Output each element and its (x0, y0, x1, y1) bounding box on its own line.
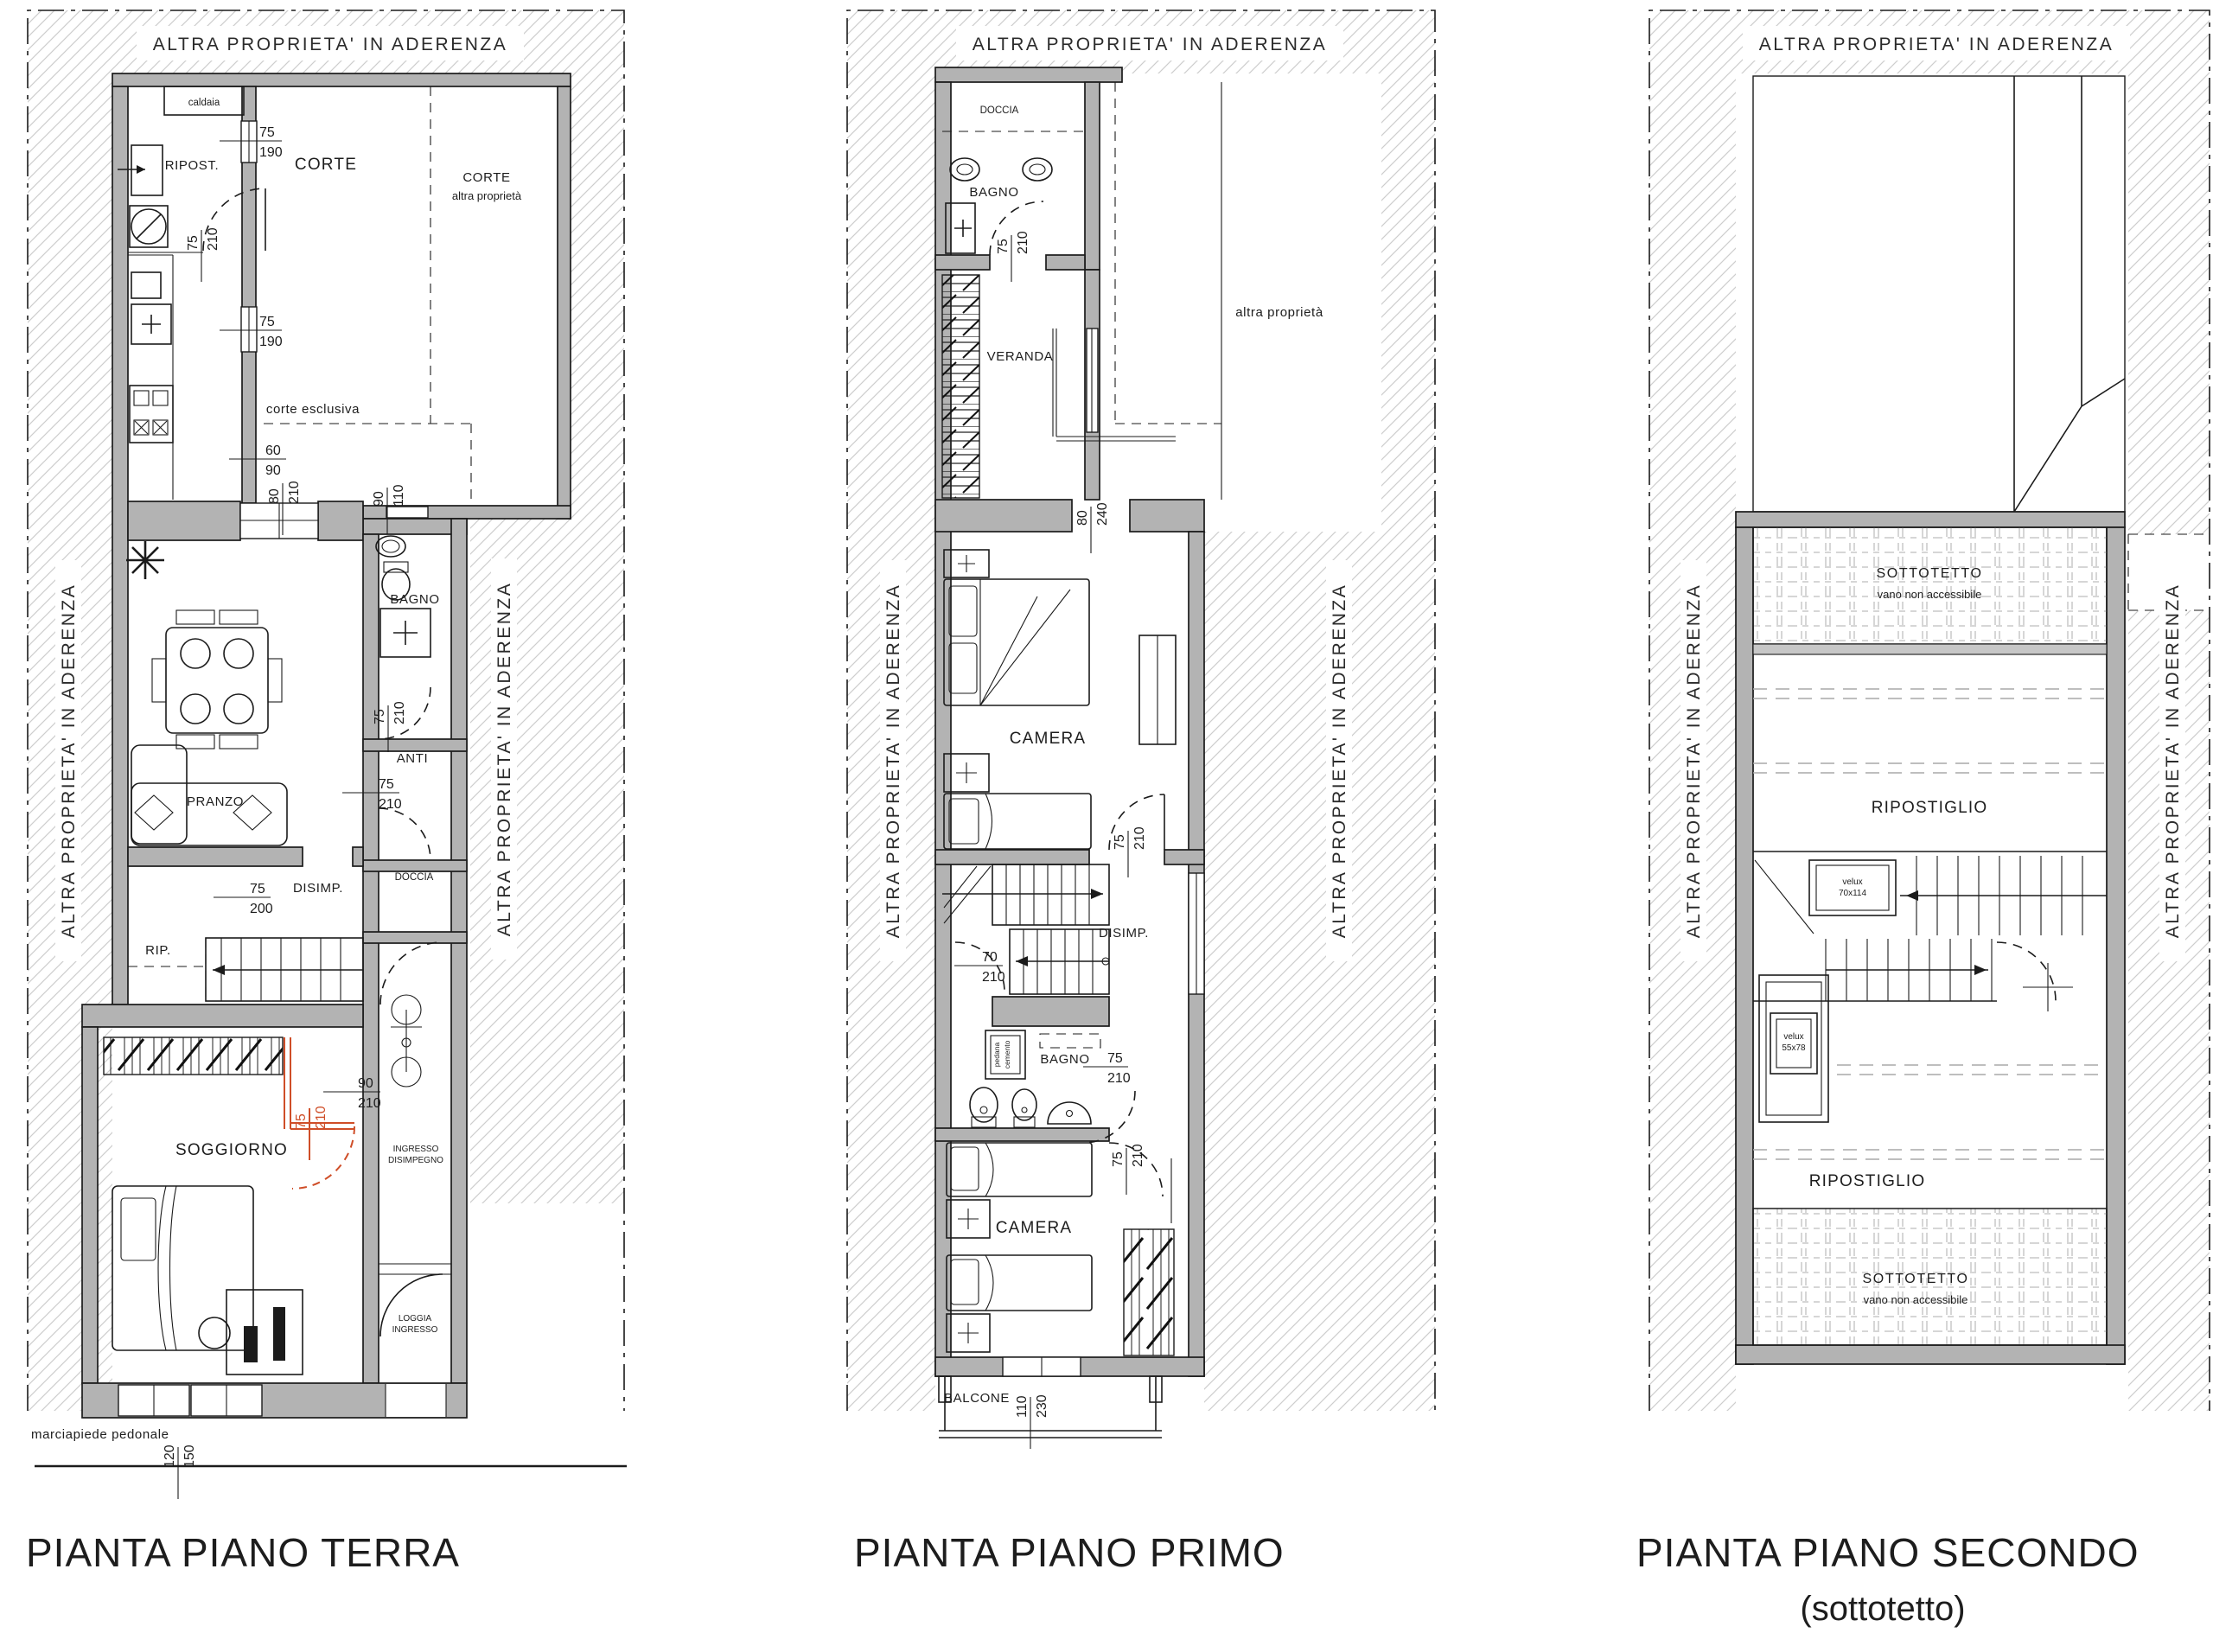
svg-text:210: 210 (206, 227, 220, 251)
svg-text:60: 60 (265, 443, 281, 458)
svg-text:75: 75 (373, 709, 387, 724)
svg-text:75: 75 (996, 239, 1011, 254)
note-cemento: cemento (1003, 1040, 1011, 1068)
room-label-disimp-primo: DISIMP. (1099, 926, 1149, 941)
room-label-camera2: CAMERA (996, 1219, 1073, 1237)
svg-text:230: 230 (1035, 1394, 1049, 1418)
svg-text:75: 75 (1107, 1051, 1123, 1066)
room-label-veranda: VERANDA (987, 349, 1054, 364)
zone-sottotetto-1: SOTTOTETTO vano non accessibile (1753, 527, 2107, 654)
note-pedana: pedana (992, 1043, 1001, 1068)
plan-title-primo: PIANTA PIANO PRIMO (854, 1530, 1285, 1575)
svg-text:75: 75 (259, 315, 275, 329)
svg-text:70: 70 (982, 950, 998, 965)
room-label-caldaia: caldaia (188, 98, 220, 108)
label-sottotetto2: SOTTOTETTO (1863, 1272, 1969, 1286)
svg-text:90: 90 (372, 491, 386, 507)
room-label-balcone: BALCONE (944, 1391, 1010, 1406)
label-velux2-2: 55x78 (1782, 1043, 1806, 1053)
svg-text:210: 210 (982, 970, 1005, 985)
room-label-soggiorno: SOGGIORNO (175, 1141, 288, 1159)
label-velux2-1: velux (1783, 1032, 1803, 1042)
room-label-bagno: BAGNO (390, 592, 439, 607)
label-sottotetto1-sub: vano non accessibile (1878, 588, 1982, 601)
room-label-bagno2: BAGNO (1040, 1052, 1089, 1067)
svg-text:210: 210 (1107, 1071, 1131, 1086)
hatch-right-upper (571, 73, 624, 519)
wardrobe-strip (104, 1037, 283, 1075)
svg-text:210: 210 (379, 797, 402, 812)
label-loggia-2: INGRESSO (392, 1325, 438, 1335)
adjacency-label-right: ALTRA PROPRIETA' IN ADERENZA (1330, 584, 1349, 938)
svg-text:120: 120 (163, 1445, 177, 1468)
label-ingresso-1: INGRESSO (393, 1145, 439, 1154)
label-velux1-1: velux (1842, 877, 1862, 887)
svg-text:210: 210 (1131, 1144, 1145, 1167)
room-label-corte-ap2: altra proprietà (452, 189, 522, 202)
svg-text:75: 75 (1111, 1151, 1126, 1167)
svg-text:190: 190 (259, 335, 283, 349)
svg-text:210: 210 (1132, 826, 1147, 850)
adjacency-label-left: ALTRA PROPRIETA' IN ADERENZA (883, 584, 903, 938)
floorplan-sheet: ALTRA PROPRIETA' IN ADERENZA ALTRA PROPR… (0, 0, 2213, 1652)
label-sottotetto1: SOTTOTETTO (1877, 566, 1983, 581)
room-label-corte-ap1: CORTE (462, 170, 510, 185)
label-marciapiede: marciapiede pedonale (31, 1427, 169, 1442)
adjacency-label-right: ALTRA PROPRIETA' IN ADERENZA (494, 582, 514, 936)
room-label-rip: RIP. (145, 943, 171, 958)
svg-text:90: 90 (265, 463, 281, 478)
svg-text:75: 75 (250, 882, 265, 896)
adjacency-label-left: ALTRA PROPRIETA' IN ADERENZA (1684, 584, 1704, 938)
svg-text:90: 90 (358, 1076, 373, 1091)
label-sottotetto2-sub: vano non accessibile (1864, 1293, 1968, 1306)
adjacency-label-right: ALTRA PROPRIETA' IN ADERENZA (2163, 584, 2183, 938)
roof-outline (1753, 76, 2125, 512)
svg-text:75: 75 (186, 235, 201, 251)
room-label-anti: ANTI (397, 751, 429, 766)
svg-text:150: 150 (182, 1445, 197, 1468)
room-label-doccia: DOCCIA (395, 872, 434, 883)
svg-text:210: 210 (287, 481, 302, 504)
hatch-right-lower (1204, 532, 1435, 1411)
svg-text:75: 75 (379, 777, 394, 792)
zone-sottotetto-2: SOTTOTETTO vano non accessibile (1753, 1209, 2107, 1345)
adjacency-label-top: ALTRA PROPRIETA' IN ADERENZA (153, 35, 507, 54)
plan-title-secondo: PIANTA PIANO SECONDO (1636, 1530, 2139, 1575)
room-label-disimp: DISIMP. (293, 881, 343, 896)
plan-title-terra: PIANTA PIANO TERRA (26, 1530, 460, 1575)
adjacency-label-left: ALTRA PROPRIETA' IN ADERENZA (59, 584, 79, 938)
svg-text:190: 190 (259, 145, 283, 160)
dim-door-nuova-h: 210 (314, 1106, 328, 1129)
label-ripostiglio2: RIPOSTIGLIO (1809, 1172, 1926, 1190)
dim-door-nuova-w: 75 (294, 1113, 309, 1129)
label-velux1-2: 70x114 (1839, 889, 1867, 898)
adjacency-label-top: ALTRA PROPRIETA' IN ADERENZA (973, 35, 1327, 54)
label-altra-proprieta: altra proprietà (1235, 305, 1323, 320)
room-label-pranzo: PRANZO (187, 794, 244, 809)
svg-text:80: 80 (267, 488, 282, 504)
svg-text:240: 240 (1095, 502, 1110, 526)
room-label-ripost: RIPOST. (165, 158, 220, 173)
svg-text:200: 200 (250, 902, 273, 916)
plan-subtitle-secondo: (sottotetto) (1800, 1590, 1965, 1628)
svg-text:210: 210 (358, 1096, 381, 1111)
svg-text:75: 75 (259, 125, 275, 140)
room-label-doccia1: DOCCIA (980, 105, 1019, 116)
label-ingresso-2: DISIMPEGNO (388, 1156, 443, 1165)
svg-text:110: 110 (392, 484, 406, 507)
room-label-corte: CORTE (295, 156, 357, 174)
svg-text:80: 80 (1075, 510, 1090, 526)
room-label-bagno1: BAGNO (969, 185, 1018, 200)
adjacency-label-top: ALTRA PROPRIETA' IN ADERENZA (1759, 35, 2114, 54)
room-label-camera1: CAMERA (1010, 730, 1087, 748)
hatch-right-upper (1381, 73, 1435, 532)
svg-text:210: 210 (392, 701, 407, 724)
room-label-corte-esclusiva: corte esclusiva (266, 402, 360, 417)
svg-text:210: 210 (1016, 231, 1030, 254)
label-loggia-1: LOGGIA (399, 1314, 432, 1324)
label-ripostiglio1: RIPOSTIGLIO (1872, 799, 1988, 817)
svg-text:110: 110 (1015, 1395, 1030, 1418)
svg-text:75: 75 (1113, 834, 1127, 850)
